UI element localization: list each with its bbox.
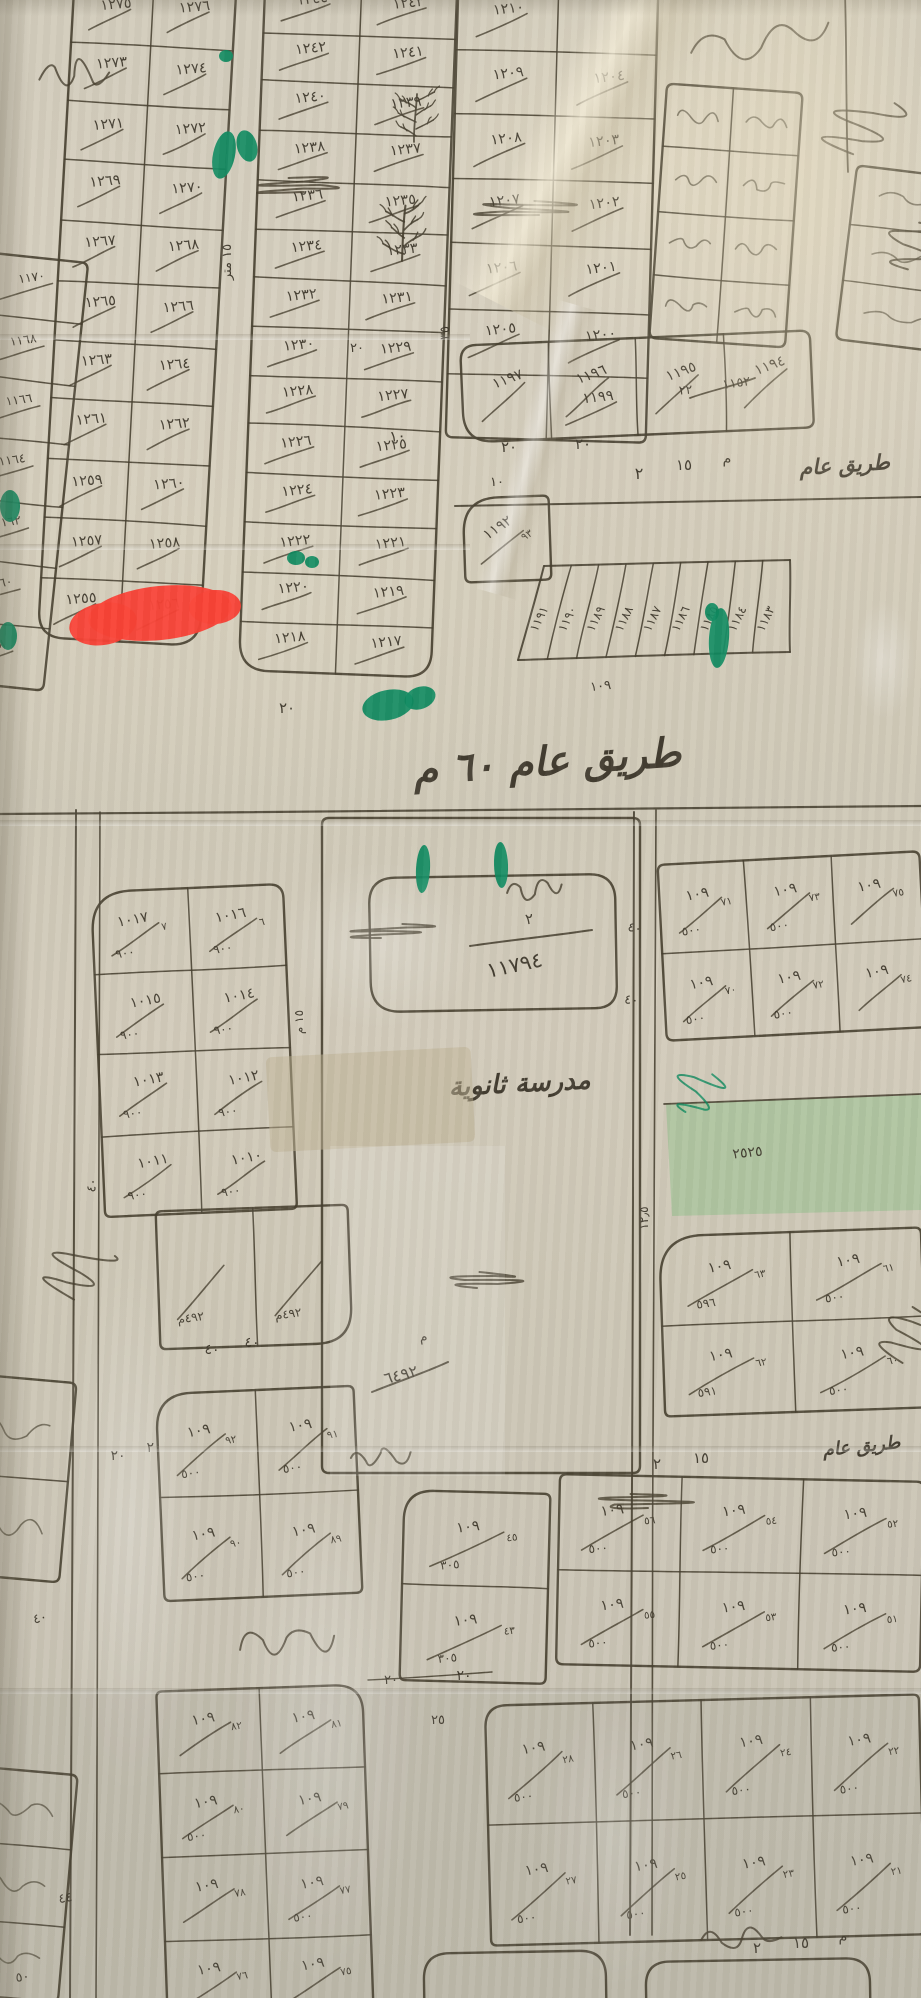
parcel-number: ١١٦٨ — [9, 330, 38, 349]
block-border — [423, 1950, 606, 1998]
parcel-number: ١٠٩ — [629, 1735, 655, 1755]
parcel-number: ١٠٩ — [521, 1738, 547, 1758]
parcel-number: ١٠٩ — [300, 1955, 326, 1975]
handwriting-squiggle — [675, 174, 716, 187]
block-block-bottom-b — [646, 1958, 871, 1998]
width-15-c: ١٥ — [793, 1934, 809, 1952]
parcel-number: ١٠٩ — [738, 1732, 764, 1752]
parcel-number: ٢١ — [890, 1864, 903, 1878]
handwriting-squiggle — [0, 1873, 45, 1894]
parcel-number: ٧١ — [720, 895, 733, 909]
parcel-number: ١٠٩ — [193, 1792, 219, 1812]
width-25-a: ٢٥ — [431, 1713, 445, 1728]
parcel-number: ١٢٧٦ — [178, 0, 211, 17]
parcel-number: ٢٦ — [670, 1749, 683, 1763]
parcel-area: ٥٠٠ — [772, 1005, 793, 1022]
ink-line — [845, 0, 848, 172]
parcel-number: ١١٩٢ — [480, 513, 515, 544]
green-marker — [305, 556, 319, 568]
handwriting-squiggle — [864, 310, 921, 326]
parcel-number: ٨١ — [330, 1717, 343, 1731]
parcel-number: ٢٧ — [565, 1874, 578, 1888]
parcel-number: ١٠١٦ — [214, 905, 248, 926]
parcel-area: ٥٠٠ — [731, 1782, 752, 1799]
plot-1152: ١١٥٢ — [722, 374, 752, 393]
block-border — [463, 496, 552, 583]
ink-line — [789, 1232, 796, 1412]
parcel-number: ١٢٢٧ — [377, 386, 410, 405]
plot-50: ٥٠ — [15, 1969, 31, 1986]
parcel-area: ٥٠٠ — [625, 1906, 646, 1923]
parcel-number: ٧٨ — [233, 1886, 247, 1900]
parcel-number: ١٢٣٢ — [285, 286, 318, 305]
parcel-number: ١٢٣٨ — [293, 139, 326, 158]
parcel-number: ٢٢ — [887, 1744, 900, 1758]
block-block-109-20s: ١٠٩٢٨٥٠٠١٠٩٢٦٥٠٠١٠٩٢٤٥٠٠١٠٩٢٢٥٠٠١٠٩٢٧٥٠٠… — [485, 1694, 921, 1945]
parcel-area: ٥٩١ — [697, 1383, 718, 1400]
school-frac-top: ٢ — [524, 910, 534, 929]
parcel-number: ١٢٧٤ — [175, 60, 207, 79]
width-20-c: ٢٠ — [279, 699, 295, 717]
parcel-area: ٩٠٠ — [217, 1103, 238, 1120]
parcel-number: ١١٨٩ — [584, 603, 608, 633]
parcel-number: ١١٧٠ — [17, 268, 46, 287]
plot-22: ٢٢ — [678, 381, 693, 397]
tree-doodle — [393, 86, 439, 142]
parcel-number: ١٠٩ — [688, 973, 714, 993]
road-label-right: طريق عام — [821, 1432, 902, 1461]
parcel-number: ٥٦ — [643, 1514, 656, 1527]
parcel-number: ٦٢ — [755, 1356, 769, 1370]
ink-line — [183, 1889, 236, 1922]
ink-line — [71, 41, 233, 51]
parcel-number: ١٠٩ — [835, 1251, 861, 1271]
handwriting-squiggle — [0, 1949, 40, 1966]
parcel-number: ١٢٢٢ — [279, 532, 312, 551]
parcel-number: ١٠١٧ — [116, 909, 150, 930]
parcel-area: ٥٠٠ — [709, 1637, 730, 1653]
parcel-number: ١٢٥٨ — [148, 534, 181, 553]
ink-line — [0, 312, 82, 324]
meter-c: م — [839, 1929, 848, 1945]
block-block-109-70s: ١٠٩٧١٥٠٠١٠٩٧٣٥٠٠١٠٩٧٥١٠٩٧٠٥٠٠١٠٩٧٢٥٠٠١٠٩… — [658, 851, 921, 1040]
parcel-number: ١٠٩ — [194, 1876, 220, 1896]
handwriting-squiggle — [665, 300, 706, 313]
width-20-b: ٢٠ — [575, 435, 591, 453]
parcel-area: ٥٠٠ — [285, 1564, 306, 1581]
parcel-area: ٥٠٠ — [831, 1544, 852, 1560]
parcel-number: ٧٧ — [339, 1883, 353, 1897]
parcel-number: ٦٣ — [753, 1268, 767, 1282]
ink-line — [558, 1568, 921, 1578]
green-marker — [0, 490, 20, 522]
parcel-number: ١١٨٧ — [640, 603, 664, 633]
width-40-b: ٤٠ — [244, 1335, 259, 1351]
ink-line — [593, 1703, 600, 1943]
parcel-number: ٢٨ — [562, 1753, 575, 1767]
handwriting-squiggle — [883, 218, 921, 274]
parcel-number: ١٢١٩ — [372, 583, 405, 602]
green-marker — [415, 845, 431, 894]
width-15-a: ١٥ — [676, 456, 692, 474]
parcel-number: ١١٩١ — [527, 604, 551, 634]
parcel-number: ١٠٩ — [186, 1421, 212, 1441]
width-20-h: ٢٠ — [350, 341, 364, 356]
parcel-area: ٥٠٠ — [839, 1780, 860, 1797]
parcel-number: ٨٩ — [329, 1532, 343, 1546]
green-marker — [208, 129, 239, 181]
parcel-number: ١٢٦٨ — [167, 237, 200, 256]
parcel-number: ١٠٩ — [842, 1600, 867, 1619]
ink-line — [0, 1917, 64, 1927]
parcel-number: ٩٢ — [224, 1433, 238, 1447]
width-20-a: ٢٠ — [501, 438, 517, 456]
parcel-number: ١٠٩ — [287, 1416, 313, 1436]
parcel-number: ٨٠ — [232, 1803, 245, 1817]
width-20-e: ٢٠ — [146, 1440, 161, 1456]
handwriting-squiggle — [743, 180, 784, 193]
road-label-top: طريق عام — [797, 450, 892, 481]
ink-line — [652, 810, 656, 1935]
parcel-number: ١٢٧٠ — [171, 179, 203, 198]
block-block-109-50s: ١٠٩٥٦٥٠٠١٠٩٥٤٥٠٠١٠٩٥٢٥٠٠١٠٩٥٥٥٠٠١٠٩٥٣٥٠٠… — [556, 1474, 921, 1672]
ink-line — [165, 1934, 371, 1942]
parcel-number: ٧ — [160, 920, 168, 933]
parcel-number: ١٢٤٤ — [296, 0, 329, 9]
parcel-number: ١١٨٨ — [612, 603, 636, 633]
ink-line — [630, 812, 634, 1935]
parcel-number: ١٢٢٨ — [281, 382, 314, 401]
parcel-number: ١٠٩ — [772, 880, 798, 900]
parcel-number: ١٢٦٣ — [80, 351, 113, 370]
parcel-area: ٥٩٦ — [695, 1295, 716, 1312]
parcel-number: ١٢٥٧ — [71, 532, 104, 551]
ink-line — [396, 121, 401, 127]
parcel-number: ١٠٩ — [291, 1520, 317, 1540]
parcel-number: ٧٠ — [724, 984, 737, 998]
parcel-number: ١٢٣٥ — [384, 192, 417, 211]
parcel-number: ٥٥ — [643, 1609, 656, 1622]
handwriting-squiggle — [238, 1624, 335, 1661]
parcel-number: ١٠٩ — [843, 1505, 868, 1524]
meter-b: م — [418, 1329, 429, 1345]
parcel-number: ١٢٤١ — [392, 43, 425, 62]
ink-line — [843, 280, 921, 295]
parcel-number: ٧٣ — [808, 891, 822, 905]
ink-line — [398, 113, 416, 122]
parcel-area: ٥٠٠ — [769, 917, 790, 934]
width-12-5-v: ١٢٫٥ — [637, 1206, 651, 1229]
green-marker — [705, 603, 719, 621]
ink-line — [334, 0, 361, 674]
parcel-number: ١٠٩ — [684, 885, 710, 905]
parcel-number: ١٢٢٦ — [280, 433, 313, 452]
ink-line — [0, 1472, 68, 1483]
block-block-1010s: ١٠١٧٧٩٠٠١٠١٦٦٩٠٠١٠١٥٩٠٠١٠١٤٩٠٠١٠١٣٩٠٠١٠١… — [91, 884, 297, 1217]
width-35-v: ٣٥ — [438, 326, 453, 340]
parcel-area: ٥٠٠ — [830, 1639, 851, 1655]
ink-line — [68, 100, 230, 110]
ink-line — [259, 1688, 272, 1998]
width-10-a: ١٠ — [389, 426, 407, 446]
plot-6492: ٦٤٩٢ — [382, 1361, 420, 1388]
parcel-area: ٥٠٠ — [516, 1910, 537, 1927]
school-frac-bottom: ١١٧٩٤ — [484, 948, 544, 983]
parcel-number: ٩٠ — [229, 1536, 242, 1550]
block-block-109-40s: ١٠٩٤٥٣٠٥١٠٩٤٣٣٠٥ — [400, 1490, 551, 1684]
strip-1180s: ١١٩١١١٩٠١١٨٩١١٨٨١١٨٧١١٨٦١١٨٥١١٨٤١١٨٣ — [518, 560, 790, 660]
parcel-number: ١٢٢١ — [374, 534, 407, 553]
block-block-1220s: ١٢٤٤١٢٤٣١٢٤٢١٢٤١١٢٤٠١٢٣٩١٢٣٨١٢٣٧١٢٣٦١٢٣٥… — [239, 0, 457, 677]
block-block-109-90s: ١٠٩٩٢٥٠٠١٠٩٩١٥٠٠١٠٩٩٠٥٠٠١٠٩٨٩٥٠٠ — [156, 1386, 363, 1601]
parcel-area: ٤٩٢م — [176, 1309, 205, 1327]
green-marker — [233, 128, 261, 164]
ink-line — [402, 1584, 548, 1589]
parcel-number: ١٠٩ — [524, 1860, 550, 1880]
parcel-number: ١٠٩ — [190, 1709, 216, 1729]
parcel-number: ١٢٦٩ — [89, 172, 122, 191]
width-10-b: ١٠ — [490, 475, 504, 490]
parcel-number: ١٠٩ — [864, 962, 890, 982]
parcel-number: ١١٩٧ — [490, 367, 525, 393]
ink-line — [0, 556, 56, 569]
parcel-number: ١٠٩ — [299, 1873, 325, 1893]
parcel-number: ١٢١٧ — [370, 633, 403, 652]
plot-44: ٤٤ — [57, 1890, 73, 1907]
ink-line — [95, 965, 287, 974]
parcel-area: ٩٠٠ — [213, 1021, 234, 1038]
width-40-e: ٤٠ — [624, 992, 639, 1008]
parcel-number: ١٠٩ — [849, 1850, 875, 1870]
ink-line — [790, 560, 791, 652]
block-grid-top-right — [649, 84, 802, 348]
handwriting-squiggle — [669, 238, 710, 250]
parcel-number: ٤٣ — [503, 1625, 516, 1638]
parcel-number: ٧٤ — [900, 972, 913, 986]
parcel-number: ٢٥ — [674, 1870, 687, 1884]
handwriting-squiggle — [735, 307, 776, 319]
ink-line — [810, 1697, 817, 1937]
green-highlight-area — [666, 1095, 921, 1216]
meter-a: م — [723, 451, 732, 467]
parcel-number: ١٠٩ — [297, 1789, 323, 1809]
ink-line — [544, 560, 790, 566]
parcel-number: ٧٦ — [236, 1969, 250, 1983]
ink-line — [386, 221, 392, 228]
handwriting-squiggle — [450, 1272, 523, 1288]
block-block-1200s: ١٢١٠١٢٠٩١٢٠٤١٢٠٨١٢٠٣١٢٠٧١٢٠٢١٢٠٦١٢٠١١٢٠٥… — [446, 0, 659, 443]
parcel-number: ١١٦٤ — [0, 450, 26, 469]
parcel-number: ١٢٦٥ — [84, 293, 116, 312]
width-40-d: ٤٠ — [626, 920, 642, 937]
parcel-number: ١٢٦٧ — [84, 233, 117, 252]
ink-line — [753, 561, 763, 653]
parcel-number: ١٢٤٠ — [294, 88, 327, 107]
handwriting-squiggle — [350, 924, 435, 938]
road-label-60m: طريق عام ٦٠ م — [410, 730, 684, 796]
parcel-number: ١٢٦٠ — [153, 475, 185, 494]
width-20-f: ٢٠ — [456, 1668, 471, 1684]
handwriting-squiggle — [40, 1236, 118, 1309]
handwriting-squiggle — [350, 1447, 411, 1468]
parcel-number: ١٠٩ — [741, 1853, 767, 1873]
parcel-area: ٣٠٥ — [437, 1650, 457, 1666]
parcel-number: ١١٦٦ — [5, 390, 34, 409]
parcel-number: ٥٢ — [886, 1518, 899, 1531]
parcel-area: ٩٠٠ — [114, 944, 135, 961]
width-2-b: ٢ — [653, 1455, 661, 1473]
parcel-area: ٥٠٠ — [185, 1568, 206, 1585]
parcel-area: ٩٠٠ — [212, 940, 233, 957]
parcel-number: ١٠٩ — [856, 876, 882, 896]
width-15-b: ١٥ — [693, 1449, 709, 1467]
width-20-g: ٢٠ — [384, 1673, 398, 1688]
ink-line — [518, 652, 790, 660]
parcel-area: ٩٠٠ — [122, 1105, 143, 1122]
parcel-number: ١٠٩ — [721, 1502, 746, 1521]
handwriting-squiggle — [872, 249, 921, 267]
parcel-number: ١٠٩ — [456, 1518, 481, 1537]
handwriting-squiggle — [0, 1515, 43, 1538]
parcel-number: ١٠٩ — [196, 1959, 222, 1979]
ink-line — [0, 433, 69, 447]
block-block-109-80s: ١٠٩٨٢١٠٩٨١١٠٩٨٠٥٠٠١٠٩٧٩١٠٩٧٨١٠٩٧٧٥٠٠١٠٩٧… — [156, 1685, 373, 1998]
parcel-number: ١٢٢٩ — [379, 339, 412, 358]
parcel-number: ٧٢ — [812, 978, 826, 992]
handwriting-squiggle — [0, 1800, 53, 1819]
ink-line — [455, 497, 921, 506]
width-40-a: ٤٠ — [204, 1342, 219, 1358]
parcel-area: ٤٩٢م — [274, 1305, 303, 1323]
green-marker — [287, 551, 305, 565]
ink-line — [634, 338, 640, 435]
parcel-number: ١٢٧١ — [92, 115, 124, 134]
parcel-number: ٢٤ — [779, 1746, 792, 1760]
block-border — [646, 1958, 871, 1998]
green-marker — [219, 50, 233, 62]
parcel-number: ١٢٦١ — [75, 410, 107, 429]
ink-line — [286, 1802, 339, 1835]
parcel-number: ٥١ — [886, 1613, 899, 1626]
parcel-number: ١٢٧٣ — [95, 54, 128, 73]
parcel-area: ٥٠٠ — [681, 922, 702, 939]
parcel-number: ١٠٩ — [190, 1524, 216, 1544]
block-edge-col-bottom1 — [0, 1374, 77, 1583]
block-edge-col-bottom2 — [0, 1766, 78, 1998]
parcel-area: ٥٠٠ — [733, 1903, 754, 1920]
ink-line — [430, 100, 435, 106]
parcel-number: ١٠٩ — [846, 1730, 872, 1750]
parcel-area: ٩٠٠ — [119, 1026, 140, 1043]
parcel-area: ٥٠٠ — [828, 1381, 849, 1398]
parcel-area: ٣٠٥ — [440, 1557, 460, 1573]
parcel-area: ٥٠٠ — [841, 1900, 862, 1917]
block-block-1190s: ١١٩٧١١٩٦١١٩٥١١٩٤ — [460, 330, 814, 442]
parcel-number: ٩٣ — [519, 527, 535, 543]
width-2-a: ٢ — [635, 464, 644, 483]
parcel-number: ٥٤ — [765, 1515, 778, 1528]
handwriting-squiggle — [677, 110, 719, 125]
parcel-area: ٥٠٠ — [180, 1465, 201, 1482]
parcel-number: ١١٨٦ — [669, 603, 693, 633]
parcel-number: ١٠٩ — [839, 1343, 865, 1363]
parcel-number: ١١٦٠ — [0, 573, 13, 592]
parcel-number: ١٠٩ — [633, 1856, 659, 1876]
parcel-number: ١١٩٤ — [752, 353, 787, 379]
handwriting-squiggle — [689, 18, 832, 66]
ink-line — [377, 237, 383, 244]
parcel-area: ٥٠٠ — [282, 1459, 303, 1476]
parcel-number: ١٢٦٢ — [158, 415, 191, 434]
parcel-number: ١٢٠٣ — [588, 132, 621, 151]
parcel-area: ٥٠٠ — [292, 1908, 313, 1925]
parcel-area: ٥٠٠ — [588, 1635, 609, 1651]
ink-line — [858, 975, 903, 1011]
parcel-number: ١٠٩ — [707, 1257, 733, 1277]
width-20-d: ٢٠ — [110, 1448, 125, 1464]
parcel-number: ١٠٩ — [721, 1598, 746, 1617]
parcel-number: ٦١ — [882, 1261, 895, 1275]
parcel-number: ١٢٣١ — [381, 289, 414, 308]
parcel-number: ١٠٩ — [708, 1345, 734, 1365]
parcel-number: ١١٩٦ — [574, 362, 609, 388]
handwriting-squiggle — [820, 87, 908, 164]
parcel-number: ٧٥ — [339, 1965, 352, 1979]
ink-line — [470, 930, 592, 946]
parcel-number: ١٠٩ — [290, 1707, 316, 1727]
ink-line — [850, 888, 895, 924]
ink-line — [433, 114, 438, 120]
parcel-number: ٧٩ — [336, 1799, 350, 1813]
green-marker — [493, 842, 509, 888]
ink-line — [701, 1700, 708, 1940]
street-15-metr: ١٥ متر — [220, 244, 235, 281]
parcel-number: ١٢٤٢ — [294, 39, 327, 58]
street-15m-v: ١٥ م — [292, 1010, 306, 1034]
parcel-number: ١٠٩ — [453, 1611, 478, 1630]
ink-line — [797, 1479, 803, 1669]
parcel-number: ١٠٩ — [600, 1596, 625, 1615]
parcel-area: ٥٠٠ — [186, 1827, 207, 1844]
parcel-number: ٩١ — [326, 1428, 339, 1442]
parcel-number: ١٢٦٦ — [162, 298, 195, 317]
parcel-number: ١٢١٠ — [492, 0, 525, 19]
parcel-area: ٥٠٠ — [824, 1289, 845, 1306]
ink-line — [96, 812, 100, 1998]
parcel-number: ١٢٤٣ — [392, 0, 425, 13]
ink-line — [279, 1720, 332, 1753]
ink-line — [716, 88, 735, 342]
ink-line — [546, 0, 559, 440]
parcel-area: ٩٠٠ — [127, 1186, 148, 1203]
width-2-c: ٢ — [753, 1939, 761, 1957]
parcel-area: ٥٠٠ — [685, 1010, 706, 1027]
plot-map-svg: ١١٧٠١١٦٨١١٦٦١١٦٤١١٦٢١١٦٠١١٥٨١٢٧٥١٢٧٦١٢٧٣… — [0, 0, 921, 1998]
plot-109-road: ١٠٩ — [589, 678, 611, 695]
ink-line — [179, 1722, 232, 1755]
block-block-bottom-a — [423, 1950, 606, 1998]
handwriting-squiggle — [506, 878, 562, 901]
ink-line — [102, 1127, 294, 1138]
ink-line — [253, 1208, 258, 1346]
parcel-number: ٥٣ — [765, 1611, 778, 1624]
handwriting-squiggle — [0, 1417, 50, 1442]
parcel-number: ١٢٣٤ — [290, 237, 323, 256]
ink-line — [662, 939, 921, 954]
parcel-area: ٥٠٠ — [588, 1540, 609, 1556]
ink-line — [662, 1316, 921, 1326]
parcel-number: ١٢٣٠ — [283, 336, 316, 355]
